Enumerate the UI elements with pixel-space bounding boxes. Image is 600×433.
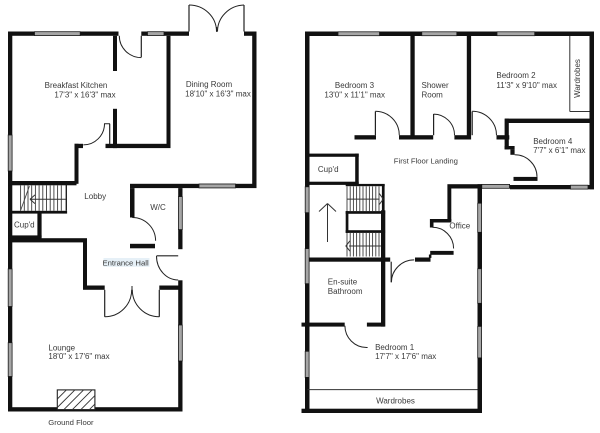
svg-text:Bedroom 3: Bedroom 3	[335, 81, 375, 90]
svg-text:Lobby: Lobby	[84, 192, 106, 201]
svg-text:Wardrobes: Wardrobes	[376, 397, 415, 406]
svg-text:Office: Office	[449, 222, 470, 231]
svg-text:Bedroom 4: Bedroom 4	[533, 137, 573, 146]
svg-text:Lounge: Lounge	[48, 343, 75, 352]
svg-text:7'7" x 6'1" max: 7'7" x 6'1" max	[533, 146, 585, 155]
svg-text:18'10" x 16'3" max: 18'10" x 16'3" max	[185, 89, 251, 98]
svg-text:Bedroom 2: Bedroom 2	[496, 71, 536, 80]
svg-text:Cup'd: Cup'd	[318, 165, 339, 174]
svg-text:Entrance Hall: Entrance Hall	[103, 258, 149, 267]
svg-text:18'0" x 17'6" max: 18'0" x 17'6" max	[48, 352, 109, 361]
svg-text:Ground Floor: Ground Floor	[48, 418, 94, 427]
svg-text:W/C: W/C	[150, 203, 166, 212]
svg-text:13'0" x 11'1" max: 13'0" x 11'1" max	[324, 90, 385, 99]
svg-text:Breakfast Kitchen: Breakfast Kitchen	[45, 81, 108, 90]
svg-text:Wardrobes: Wardrobes	[573, 59, 582, 98]
svg-text:Dining Room: Dining Room	[186, 80, 233, 89]
svg-text:Room: Room	[422, 90, 444, 99]
svg-text:Bedroom 1: Bedroom 1	[375, 343, 415, 352]
svg-text:En-suite: En-suite	[328, 277, 358, 286]
svg-text:11'3" x 9'10" max: 11'3" x 9'10" max	[496, 81, 557, 90]
svg-text:17'7" x 17'6" max: 17'7" x 17'6" max	[375, 352, 436, 361]
svg-text:Bathroom: Bathroom	[328, 287, 363, 296]
svg-text:17'3" x 16'3" max: 17'3" x 16'3" max	[54, 91, 115, 100]
svg-text:Shower: Shower	[422, 81, 449, 90]
svg-text:First Floor Landing: First Floor Landing	[394, 157, 458, 166]
svg-text:Cup'd: Cup'd	[14, 221, 35, 230]
